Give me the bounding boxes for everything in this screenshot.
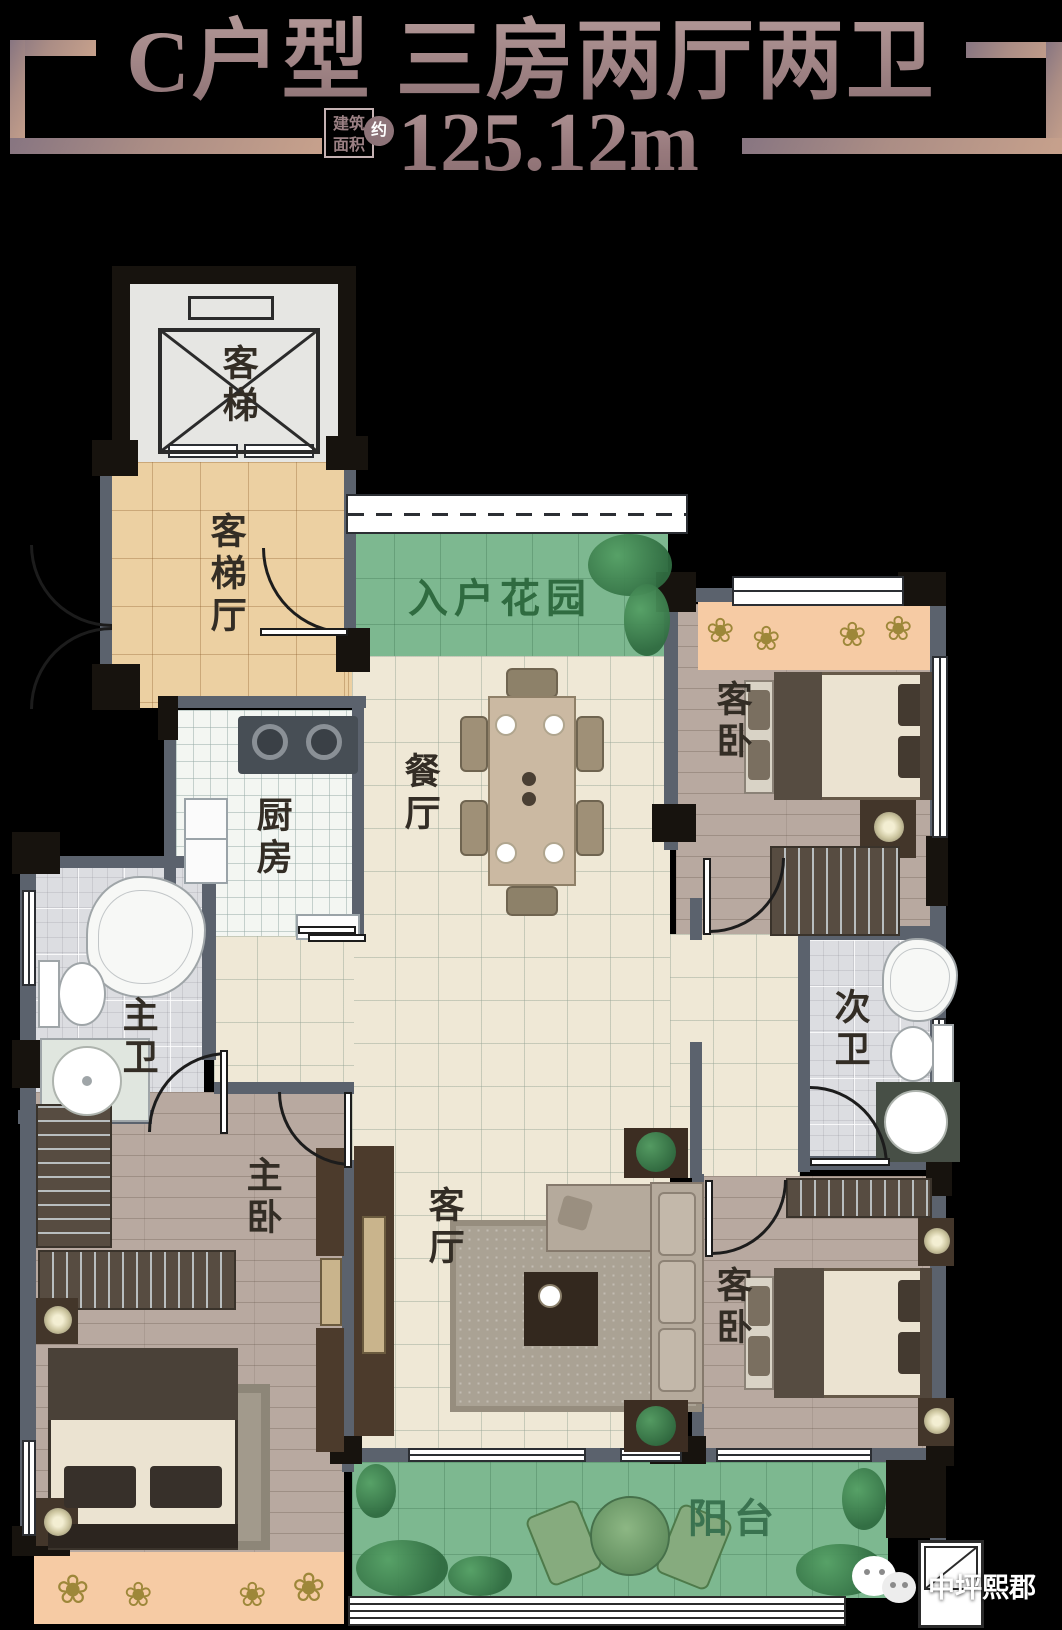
floorplan-canvas: C户型 三房两厅两卫 建筑 面积 约 125.12m2 (0, 0, 1062, 1630)
wall (202, 856, 216, 1060)
plant-icon (448, 1556, 512, 1596)
column (326, 436, 368, 470)
kitchen-sliding-door (308, 934, 366, 942)
brand-watermark: 中坪熙郡 (928, 1566, 1036, 1605)
column (158, 696, 178, 740)
area-badge-line2: 面积 (326, 136, 372, 157)
toilet-tank (932, 1024, 954, 1084)
dining-chair (576, 716, 604, 772)
room-label-balcony: 阳台 (688, 1486, 780, 1544)
dining-chair (506, 668, 558, 698)
guest-bedroom-bottom-window (716, 1448, 872, 1462)
wechat-eye (902, 1582, 908, 1588)
stove-burner (306, 724, 342, 760)
tv (320, 1258, 342, 1326)
room-label-second-bath: 次卫 (830, 988, 870, 1072)
flower-icon: ❀ (838, 618, 867, 652)
bed-blanket (774, 672, 822, 800)
sofa-cushion (658, 1192, 696, 1256)
balcony-railing (348, 1596, 846, 1626)
column (926, 836, 948, 906)
plant-icon (636, 1132, 676, 1172)
door-leaf (810, 1158, 890, 1166)
area-value: 125.12m2 (398, 94, 721, 191)
dish (522, 792, 536, 806)
lamp (44, 1508, 72, 1536)
headboard (920, 1268, 932, 1398)
bathtub-inner (98, 890, 193, 984)
basin-drain (82, 1076, 92, 1086)
stove-burner (252, 724, 288, 760)
room-label-entry-garden: 入户花园 (408, 566, 592, 624)
door-leaf (705, 1180, 713, 1257)
toilet-tank (38, 960, 60, 1028)
title-frame-left-bottom (10, 138, 322, 154)
flower-icon: ❀ (292, 1568, 326, 1608)
basin (884, 1090, 948, 1154)
area-badge-circle: 约 (364, 116, 394, 146)
column (652, 804, 696, 842)
wall (798, 930, 810, 1172)
plant-icon (636, 1406, 676, 1446)
bathtub (882, 938, 958, 1022)
plate (543, 842, 565, 864)
plant-icon (842, 1468, 886, 1530)
flower-icon: ❀ (56, 1570, 90, 1610)
sofa-cushion (658, 1260, 696, 1324)
room-label-kitchen: 厨房 (252, 796, 292, 880)
fridge (184, 798, 228, 884)
bed-blanket (48, 1348, 238, 1420)
balcony-door-window (408, 1448, 586, 1462)
pillow (64, 1466, 136, 1508)
flower-icon: ❀ (884, 612, 913, 646)
tv (362, 1216, 386, 1354)
title-frame-right-bottom (742, 138, 1062, 154)
wall (690, 898, 702, 940)
entry-garden-window (346, 494, 688, 534)
wechat-eye (890, 1582, 896, 1588)
pillow (150, 1466, 222, 1508)
column (898, 572, 946, 606)
wardrobe (36, 1104, 112, 1248)
wechat-bubble-small (882, 1572, 916, 1603)
wechat-eye (864, 1569, 870, 1575)
dining-chair (460, 800, 488, 856)
room-label-master-bedroom: 主卧 (242, 1156, 282, 1240)
flower-icon: ❀ (238, 1578, 267, 1612)
room-label-guest-bedroom-bottom: 客卧 (712, 1266, 752, 1350)
plant-icon (624, 584, 670, 656)
toilet-bowl (58, 962, 106, 1026)
column (92, 440, 138, 476)
bed-blanket (774, 1268, 824, 1398)
wardrobe (770, 846, 900, 936)
plate (495, 714, 517, 736)
column (12, 832, 60, 874)
flower-icon: ❀ (706, 614, 735, 648)
room-label-dining: 餐厅 (400, 752, 440, 836)
fridge-divider (184, 838, 228, 840)
lamp (924, 1408, 950, 1434)
toilet-bowl (890, 1026, 936, 1082)
area-superscript: 2 (699, 95, 721, 144)
plant-icon (356, 1464, 396, 1518)
dining-chair (460, 716, 488, 772)
hallway-floor-left (214, 936, 354, 1092)
wall (164, 696, 366, 708)
dining-chair (506, 886, 558, 916)
wechat-eye (879, 1569, 885, 1575)
entry-door-arc (30, 545, 112, 627)
plant-icon (356, 1540, 448, 1596)
lamp (924, 1228, 950, 1254)
dish (522, 772, 536, 786)
wardrobe (786, 1178, 932, 1218)
headboard (920, 672, 932, 800)
dresser (316, 1328, 344, 1452)
wall (690, 1042, 702, 1178)
room-label-elevator: 客梯 (218, 344, 258, 428)
guest-bedroom-right-window (932, 656, 948, 838)
door-leaf (344, 1092, 352, 1168)
room-label-elevator-hall: 客梯厅 (206, 512, 246, 638)
headboard (48, 1524, 238, 1548)
room-label-guest-bedroom-top: 客卧 (712, 680, 752, 764)
plate (543, 714, 565, 736)
door-leaf (220, 1050, 228, 1134)
master-bath-window (22, 890, 36, 986)
entry-door-arc (30, 627, 112, 709)
sofa-cushion (658, 1328, 696, 1392)
room-label-master-bath: 主卫 (118, 996, 158, 1080)
lamp (44, 1306, 72, 1334)
door-leaf (260, 628, 348, 636)
master-bedroom-window (22, 1440, 36, 1536)
column (886, 1460, 946, 1538)
lamp (874, 812, 904, 842)
kitchen-sliding-door (298, 926, 356, 934)
coffee-table (524, 1272, 598, 1346)
plant-icon (588, 534, 672, 596)
guest-bedroom-top-window (732, 576, 904, 606)
flower-icon: ❀ (124, 1578, 153, 1612)
dining-chair (576, 800, 604, 856)
elevator-counterweight (188, 296, 274, 320)
balcony-table (590, 1496, 670, 1576)
plate (538, 1284, 562, 1308)
flower-icon: ❀ (752, 622, 781, 656)
room-label-living: 客厅 (424, 1186, 464, 1270)
door-leaf (703, 858, 711, 935)
wechat-icon (852, 1556, 924, 1608)
plate (495, 842, 517, 864)
bathtub-inner (890, 948, 950, 1012)
